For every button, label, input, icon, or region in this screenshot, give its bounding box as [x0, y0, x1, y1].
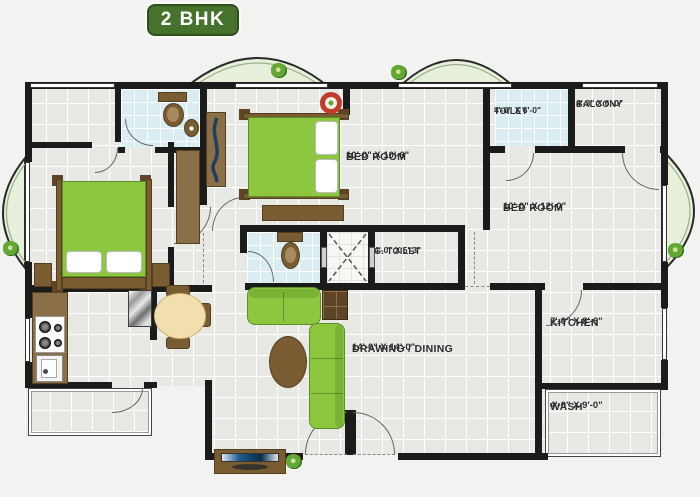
wall [25, 362, 32, 388]
wall [168, 142, 174, 207]
wall [458, 225, 465, 290]
dining-table [154, 293, 206, 339]
pillow [106, 251, 142, 273]
window [398, 83, 512, 88]
wall [583, 283, 668, 290]
sofa-cushion-divider [311, 358, 343, 359]
window [25, 318, 30, 362]
bed-headboard [62, 277, 146, 289]
wall [490, 146, 505, 153]
wall [25, 82, 32, 162]
pillow [66, 251, 102, 273]
tv-stand [232, 464, 268, 470]
toilet-bowl-inner [285, 247, 296, 263]
wall [661, 360, 668, 390]
wall [568, 89, 575, 146]
wall [245, 225, 465, 232]
stove-burner [54, 324, 62, 332]
window [662, 308, 667, 360]
toilet-tank [277, 232, 303, 242]
plant-icon [271, 63, 287, 78]
plant-icon [391, 65, 407, 80]
stove-burner [39, 321, 51, 333]
sofa-cushion-divider [311, 393, 343, 394]
dresser [262, 205, 344, 221]
sofa-backrest [335, 325, 343, 427]
wall [144, 382, 157, 388]
wall [542, 383, 662, 389]
toilet-tank [158, 92, 187, 102]
background-patch [662, 390, 668, 455]
bedside-table [152, 263, 170, 287]
basin-drain [189, 126, 194, 131]
opening-dashes [465, 286, 490, 287]
window [662, 185, 667, 262]
wardrobe [176, 150, 200, 244]
opening-dashes [203, 233, 204, 283]
threshold-dashes [353, 454, 395, 455]
sofa-backrest [249, 289, 319, 298]
pillow [315, 159, 338, 193]
window [25, 162, 30, 262]
wall [25, 82, 668, 89]
window [235, 83, 328, 88]
wardrobe-mirror [206, 112, 226, 187]
pillow [315, 121, 338, 155]
wall [25, 262, 32, 318]
wall [398, 453, 548, 460]
shaft-vent [321, 247, 327, 268]
center-table [269, 336, 307, 388]
floor-plan: BED ROOM10'-0" X 10'-6" TOILET4'-0" X 6'… [0, 0, 700, 497]
duct-shaft [327, 232, 368, 283]
gas-stove [35, 316, 65, 353]
plant-icon [3, 241, 19, 256]
wall [205, 380, 212, 460]
background-patch [152, 386, 205, 455]
wall [490, 283, 545, 290]
tv-screen [221, 453, 279, 462]
wall [115, 89, 121, 142]
opening-dashes [474, 232, 475, 284]
plan-title-badge: 2 BHK [147, 4, 239, 36]
window [30, 83, 115, 88]
refrigerator [128, 290, 152, 327]
wall [661, 82, 668, 185]
floor-toilet-topright [495, 89, 568, 146]
threshold-dashes [305, 454, 347, 455]
plant-icon [286, 454, 302, 469]
wall [483, 89, 490, 230]
window [582, 83, 658, 88]
wall [118, 147, 125, 153]
wall [535, 290, 542, 455]
stove-burner [39, 337, 51, 349]
bedside-table [34, 263, 52, 287]
background-patch [25, 436, 152, 455]
corner-table [322, 290, 348, 320]
wall [535, 146, 625, 153]
sink-faucet [43, 369, 48, 374]
plant-icon [668, 243, 684, 258]
toilet-bowl-inner [167, 107, 179, 122]
wall [661, 262, 668, 308]
sofa-cushion-divider [283, 292, 284, 322]
wall [25, 142, 92, 148]
stove-burner [54, 339, 62, 347]
table-fan-icon [320, 92, 342, 114]
